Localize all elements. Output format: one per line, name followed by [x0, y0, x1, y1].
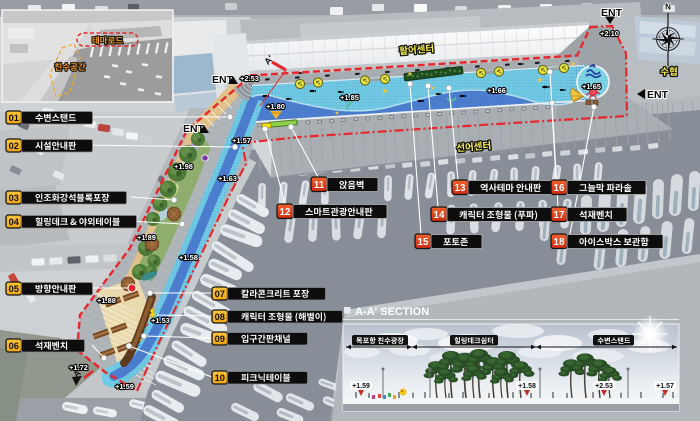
svg-text:+1.85: +1.85 — [340, 93, 359, 102]
svg-text:01: 01 — [9, 113, 19, 123]
svg-text:+1.72: +1.72 — [69, 363, 88, 372]
svg-text:+1.63: +1.63 — [218, 174, 237, 183]
svg-text:+1.98: +1.98 — [174, 162, 193, 171]
svg-text:12: 12 — [280, 207, 291, 218]
svg-text:+1.88: +1.88 — [97, 296, 116, 305]
svg-text:+2.10: +2.10 — [600, 29, 619, 38]
svg-text:+1.58: +1.58 — [179, 253, 198, 262]
svg-text:+1.89: +1.89 — [137, 233, 156, 242]
svg-text:11: 11 — [314, 180, 325, 191]
svg-text:+1.59: +1.59 — [352, 383, 370, 390]
svg-text:14: 14 — [434, 210, 445, 221]
svg-text:+1.57: +1.57 — [656, 383, 674, 390]
svg-text:15: 15 — [418, 237, 429, 248]
svg-text:+1.59: +1.59 — [115, 382, 134, 391]
svg-text:04: 04 — [9, 217, 20, 227]
svg-text:+1.80: +1.80 — [266, 102, 285, 111]
svg-text:+2.53: +2.53 — [595, 383, 613, 390]
svg-text:09: 09 — [215, 334, 225, 344]
svg-text:02: 02 — [9, 141, 19, 151]
svg-text:07: 07 — [215, 289, 225, 299]
svg-text:ENT: ENT — [212, 74, 234, 86]
svg-text:+1.57: +1.57 — [232, 136, 251, 145]
svg-text:+1.58: +1.58 — [518, 383, 536, 390]
svg-text:ENT: ENT — [183, 123, 205, 135]
svg-text:+2.53: +2.53 — [240, 74, 259, 83]
svg-text:+1.65: +1.65 — [582, 82, 601, 91]
svg-text:05: 05 — [9, 284, 19, 294]
svg-text:N: N — [665, 3, 671, 12]
svg-text:03: 03 — [9, 193, 19, 203]
svg-text:16: 16 — [554, 183, 565, 194]
svg-text:18: 18 — [554, 237, 565, 248]
svg-text:+1.53: +1.53 — [151, 316, 170, 325]
svg-text:06: 06 — [9, 341, 19, 351]
svg-text:A-A′ SECTION: A-A′ SECTION — [355, 306, 429, 318]
svg-text:10: 10 — [215, 373, 225, 383]
svg-text:17: 17 — [554, 210, 565, 221]
svg-text:ENT: ENT — [647, 89, 669, 101]
svg-text:08: 08 — [215, 312, 225, 322]
svg-text:13: 13 — [455, 183, 466, 194]
svg-text:+1.66: +1.66 — [487, 86, 506, 95]
